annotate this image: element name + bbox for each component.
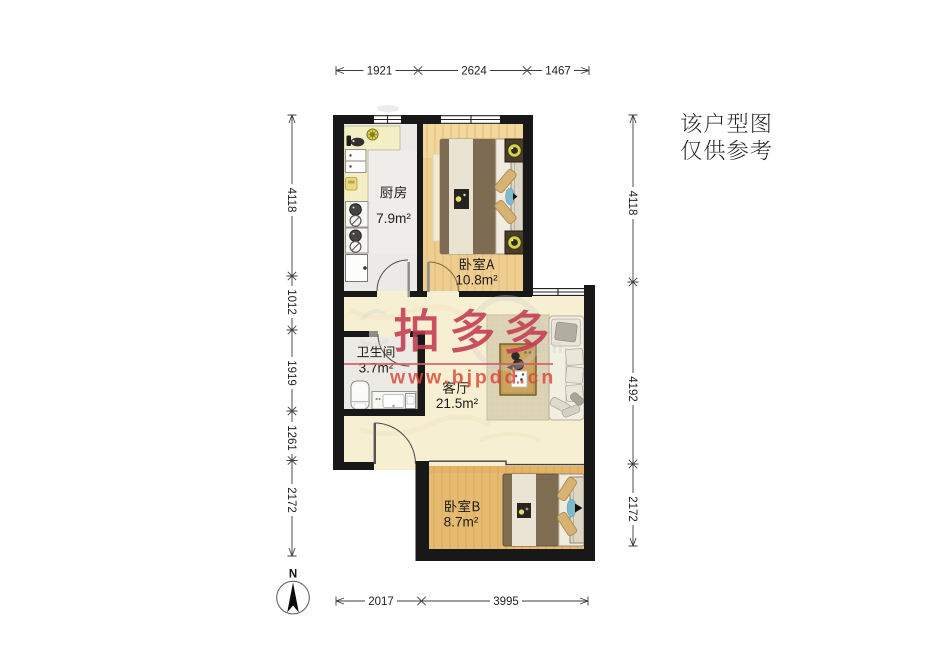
svg-text:2624: 2624 bbox=[461, 66, 487, 78]
svg-text:www.bjpdd.cn: www.bjpdd.cn bbox=[389, 367, 556, 389]
svg-text:8.7m²: 8.7m² bbox=[444, 515, 479, 530]
svg-text:1012: 1012 bbox=[285, 289, 297, 315]
svg-text:2172: 2172 bbox=[626, 496, 638, 522]
svg-text:1467: 1467 bbox=[545, 66, 571, 78]
svg-text:4192: 4192 bbox=[626, 376, 638, 402]
svg-text:7.9m²: 7.9m² bbox=[376, 211, 411, 226]
svg-text:2172: 2172 bbox=[285, 487, 297, 513]
svg-text:3995: 3995 bbox=[493, 596, 519, 608]
svg-text:4118: 4118 bbox=[626, 191, 638, 216]
svg-text:1919: 1919 bbox=[285, 360, 297, 386]
svg-text:N: N bbox=[289, 569, 297, 581]
svg-text:1261: 1261 bbox=[285, 425, 297, 451]
svg-text:21.5m²: 21.5m² bbox=[436, 396, 479, 411]
svg-text:2017: 2017 bbox=[368, 596, 394, 608]
svg-text:1921: 1921 bbox=[367, 66, 393, 78]
svg-text:3.7m²: 3.7m² bbox=[359, 361, 394, 376]
svg-text:10.8m²: 10.8m² bbox=[455, 273, 498, 288]
svg-text:4118: 4118 bbox=[285, 188, 297, 213]
